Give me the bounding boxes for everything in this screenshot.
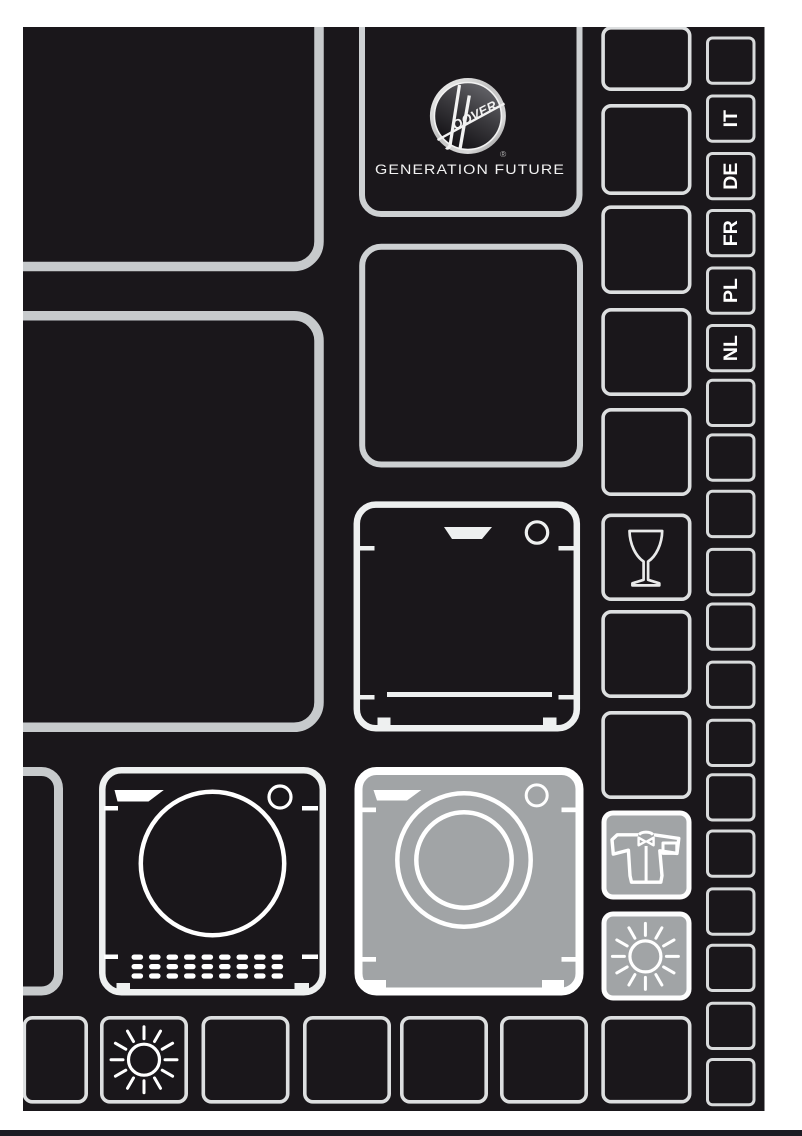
svg-text:DE: DE: [720, 163, 742, 190]
svg-text:PL: PL: [720, 278, 742, 303]
svg-text:NL: NL: [720, 335, 742, 361]
svg-text:GENERATION FUTURE: GENERATION FUTURE: [375, 162, 565, 178]
svg-text:®: ®: [500, 149, 507, 159]
svg-text:FR: FR: [720, 220, 742, 246]
svg-text:IT: IT: [720, 110, 742, 127]
